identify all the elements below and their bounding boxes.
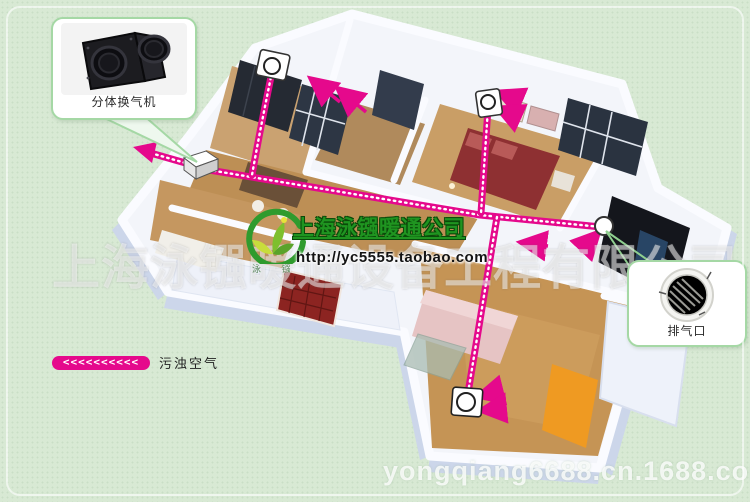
legend-label: 污浊空气 [159,353,219,372]
taobao-url-text: http://yc5555.taobao.com [296,249,488,266]
callout-exhaust: 排气口 [627,260,747,347]
watermark-site-text: yongqiang6688.cn.1688.com [383,456,750,487]
legend-dirty-air: <<<<<<<<<< 污浊空气 [52,353,219,372]
legend-chevrons: <<<<<<<<<< [63,356,139,368]
promo-image: 上海泳镪暖通设备工程有限公司 yongqiang6688.cn.1688.com… [0,0,750,502]
brand-logo-caption: 泳 镪 [252,262,300,275]
vent-bedroom [475,88,502,117]
callout-fan-unit: 分体换气机 [51,17,197,120]
vent-bathroom [256,49,291,81]
vent-livingroom [451,387,483,417]
exhaust-vent-label: 排气口 [629,324,745,338]
dirty-air-arrow-icon: <<<<<<<<<< [52,356,150,370]
exhaust-vent-photo [637,266,737,324]
fan-unit-label: 分体换气机 [53,95,195,109]
fan-unit-photo [61,23,187,95]
company-name-text: 上海泳镪暖通公司 [293,212,465,242]
